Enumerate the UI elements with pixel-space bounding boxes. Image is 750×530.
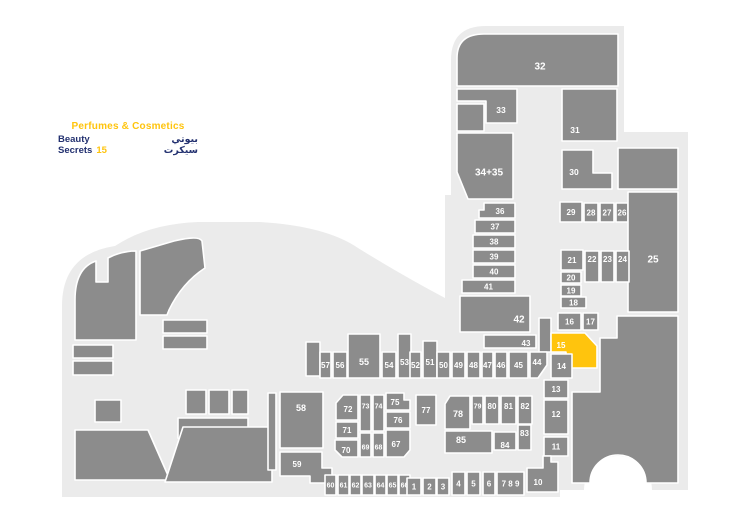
unit-50[interactable]: [437, 352, 450, 378]
unit-38[interactable]: [473, 235, 515, 248]
unit-85[interactable]: [445, 431, 492, 453]
unit-65[interactable]: [387, 475, 398, 495]
unit-32[interactable]: [457, 34, 618, 86]
unit-58[interactable]: [280, 392, 323, 448]
unit-31[interactable]: [562, 89, 617, 141]
unit-7 8 9[interactable]: [497, 472, 524, 495]
unit-72[interactable]: [336, 395, 358, 420]
unit-80[interactable]: [485, 396, 499, 424]
unit-18[interactable]: [561, 297, 586, 308]
unit-28[interactable]: [584, 203, 598, 222]
unit-57[interactable]: [320, 352, 331, 378]
unit-76[interactable]: [386, 412, 410, 428]
structure-block: [163, 336, 207, 349]
unit-84[interactable]: [494, 432, 516, 450]
structure-block: [73, 345, 113, 358]
unit-51[interactable]: [423, 341, 437, 378]
structure-block: [95, 400, 121, 422]
unit-73[interactable]: [360, 395, 371, 431]
unit-77[interactable]: [416, 395, 436, 425]
unit-19[interactable]: [561, 285, 581, 296]
unit-49[interactable]: [452, 352, 465, 378]
unit-78[interactable]: [445, 396, 470, 429]
unit-82[interactable]: [518, 396, 532, 424]
unit-56[interactable]: [333, 352, 347, 378]
structure-block: [73, 361, 113, 375]
unit-45[interactable]: [509, 352, 528, 378]
unit-55[interactable]: [348, 334, 380, 378]
unit-4[interactable]: [452, 472, 465, 495]
unit-61[interactable]: [338, 475, 349, 495]
unit-70[interactable]: [335, 440, 358, 457]
structure-block: [232, 390, 248, 414]
unit-52[interactable]: [410, 352, 421, 378]
legend-store-name: Beauty Secrets15: [58, 134, 137, 156]
structure-block: [306, 342, 320, 376]
unit-24[interactable]: [616, 251, 629, 282]
structure-block: [163, 320, 207, 333]
unit-21[interactable]: [561, 250, 583, 270]
unit-79[interactable]: [472, 396, 483, 424]
legend-store-number: 15: [96, 145, 107, 156]
unit-37[interactable]: [475, 220, 515, 233]
unit-22[interactable]: [585, 251, 599, 282]
unit-60[interactable]: [325, 475, 336, 495]
unit-43[interactable]: [484, 335, 536, 348]
unit-13[interactable]: [544, 380, 568, 398]
unit-54[interactable]: [382, 352, 396, 378]
unit-81[interactable]: [501, 396, 516, 424]
unit-16[interactable]: [558, 313, 581, 330]
unit-67[interactable]: [386, 430, 410, 457]
unit-48[interactable]: [467, 352, 480, 378]
unit-34+35[interactable]: [457, 133, 513, 199]
unit-62[interactable]: [350, 475, 361, 495]
unit-3[interactable]: [437, 478, 449, 495]
unit-83[interactable]: [518, 425, 531, 450]
unit-5[interactable]: [467, 472, 480, 495]
unit-25[interactable]: [628, 192, 678, 312]
structure-block: [539, 318, 551, 352]
legend-store-name-arabic: بيوتي سيكرت: [137, 134, 198, 156]
unit-71[interactable]: [336, 422, 358, 438]
unit-36[interactable]: [479, 203, 515, 218]
structure-block: [268, 393, 276, 470]
unit-26[interactable]: [616, 203, 628, 222]
legend-category: Perfumes & Cosmetics: [58, 121, 198, 132]
legend: Perfumes & Cosmetics Beauty Secrets15 بي…: [58, 121, 198, 156]
unit-40[interactable]: [473, 265, 515, 278]
structure-block: [209, 390, 229, 414]
unit-17[interactable]: [583, 313, 598, 330]
unit-20[interactable]: [561, 272, 581, 283]
unit-68[interactable]: [373, 433, 384, 457]
unit-14[interactable]: [551, 354, 572, 378]
unit-29[interactable]: [560, 202, 582, 222]
structure-block: [186, 390, 206, 414]
structure-block: [618, 148, 678, 189]
unit-39[interactable]: [473, 250, 515, 263]
unit-47[interactable]: [482, 352, 493, 378]
mall-map: 323334+353130292827262521222324201918161…: [0, 0, 750, 530]
unit-27[interactable]: [600, 203, 614, 222]
unit-11[interactable]: [544, 437, 568, 456]
structure-block: [165, 427, 272, 482]
unit-6[interactable]: [483, 472, 495, 495]
unit-1[interactable]: [407, 478, 421, 495]
unit-12[interactable]: [544, 400, 568, 434]
unit-46[interactable]: [495, 352, 507, 378]
unit-41[interactable]: [462, 280, 515, 293]
unit-63[interactable]: [362, 475, 374, 495]
unit-23[interactable]: [601, 251, 614, 282]
unit-69[interactable]: [360, 433, 371, 457]
structure-block: [457, 104, 484, 131]
unit-42[interactable]: [460, 296, 530, 332]
unit-53[interactable]: [398, 334, 411, 378]
unit-2[interactable]: [423, 478, 436, 495]
unit-64[interactable]: [375, 475, 386, 495]
unit-74[interactable]: [373, 395, 384, 431]
